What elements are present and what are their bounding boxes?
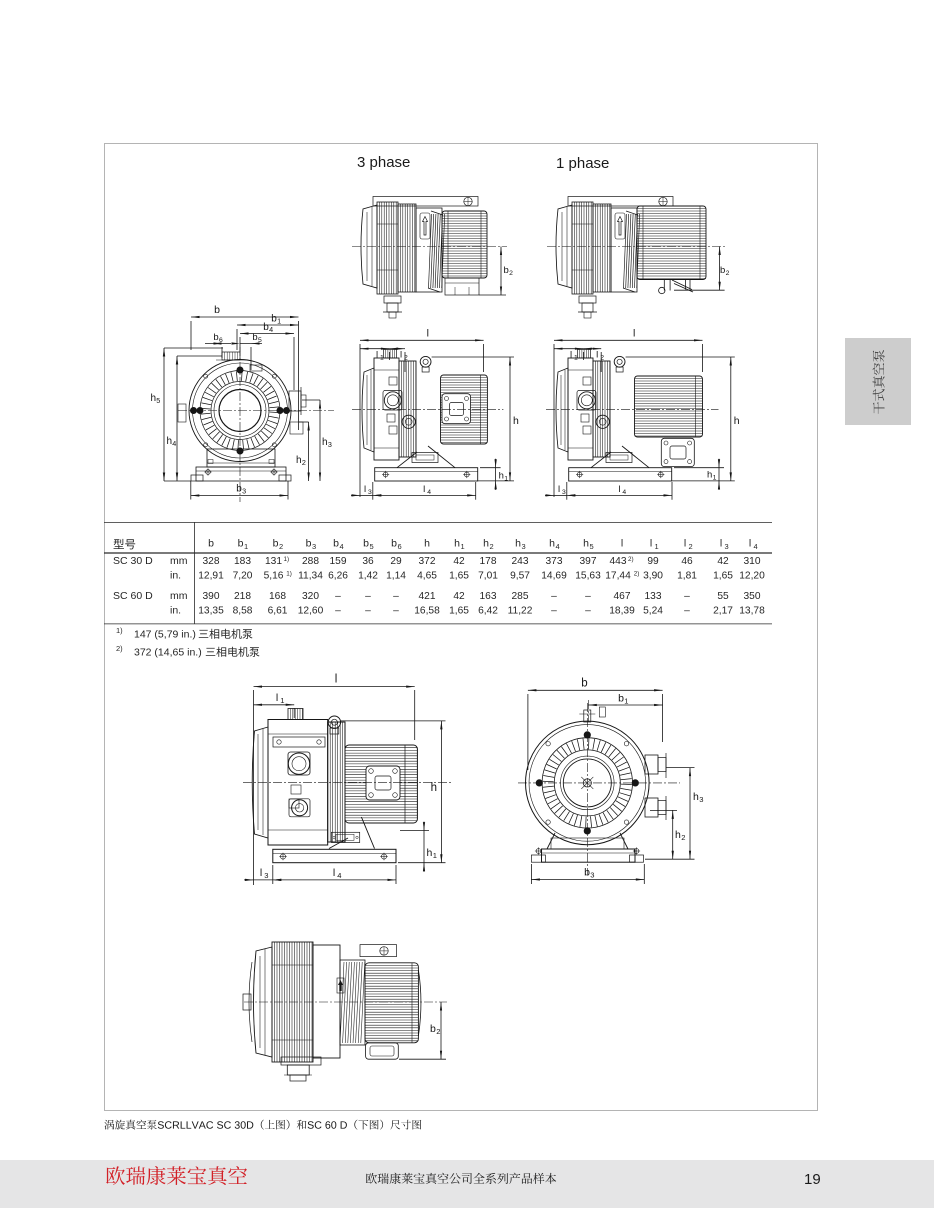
svg-text:b: b [504, 265, 509, 276]
svg-text:443: 443 [610, 556, 627, 567]
svg-text:2: 2 [726, 270, 730, 277]
svg-text:h: h [427, 847, 433, 859]
svg-text:2: 2 [490, 542, 494, 551]
svg-text:h: h [513, 415, 519, 427]
svg-text:mm: mm [170, 590, 188, 602]
svg-text:b: b [273, 538, 279, 550]
svg-text:–: – [393, 606, 399, 617]
svg-text:–: – [551, 606, 557, 617]
svg-text:42: 42 [453, 591, 465, 602]
svg-text:5,16: 5,16 [264, 571, 284, 582]
svg-text:l: l [260, 867, 262, 879]
svg-text:3: 3 [699, 795, 703, 804]
svg-text:in.: in. [170, 605, 181, 617]
svg-text:l: l [684, 538, 686, 550]
svg-text:5: 5 [370, 542, 374, 551]
svg-text:6,61: 6,61 [268, 606, 288, 617]
svg-text:9,57: 9,57 [510, 571, 530, 582]
svg-text:l: l [427, 328, 429, 340]
svg-text:4,65: 4,65 [417, 571, 437, 582]
svg-text:3: 3 [264, 871, 268, 880]
svg-text:42: 42 [453, 556, 465, 567]
svg-text:b: b [363, 538, 369, 550]
svg-text:3: 3 [312, 542, 316, 551]
svg-text:–: – [551, 591, 557, 602]
svg-text:4: 4 [754, 542, 758, 551]
svg-text:1: 1 [574, 355, 578, 362]
svg-text:4: 4 [340, 542, 344, 551]
svg-text:b: b [238, 538, 244, 550]
svg-text:285: 285 [512, 591, 529, 602]
svg-text:133: 133 [645, 591, 662, 602]
svg-text:36: 36 [362, 556, 374, 567]
svg-text:in.: in. [170, 570, 181, 582]
svg-text:243: 243 [512, 556, 529, 567]
svg-text:46: 46 [681, 556, 693, 567]
svg-text:b: b [306, 538, 312, 550]
svg-text:390: 390 [203, 591, 220, 602]
svg-text:350: 350 [744, 591, 761, 602]
svg-text:b: b [252, 332, 257, 343]
svg-text:3: 3 [242, 487, 246, 496]
svg-text:13,78: 13,78 [739, 606, 765, 617]
svg-text:29: 29 [390, 556, 402, 567]
svg-text:8,58: 8,58 [233, 606, 253, 617]
svg-text:11,22: 11,22 [508, 606, 533, 617]
svg-text:7,01: 7,01 [478, 571, 498, 582]
svg-text:131: 131 [265, 556, 282, 567]
svg-text:14,69: 14,69 [541, 571, 567, 582]
svg-text:2: 2 [689, 542, 693, 551]
svg-text:1: 1 [380, 355, 384, 362]
svg-text:h: h [693, 791, 699, 803]
svg-text:l: l [333, 867, 335, 879]
svg-text:h: h [515, 538, 521, 550]
svg-text:2: 2 [436, 1027, 440, 1036]
svg-text:h: h [322, 437, 328, 448]
svg-text:SC 30 D: SC 30 D [113, 555, 153, 567]
svg-text:147 (5,79 in.): 147 (5,79 in.) [134, 629, 196, 641]
svg-text:5: 5 [258, 337, 262, 344]
svg-text:h: h [734, 415, 740, 427]
svg-text:372 (14,65 in.): 372 (14,65 in.) [134, 647, 202, 659]
svg-text:42: 42 [717, 556, 729, 567]
svg-text:l: l [633, 328, 635, 340]
svg-text:3 phase: 3 phase [357, 154, 410, 171]
svg-text:h: h [707, 470, 712, 481]
svg-text:1,65: 1,65 [449, 571, 469, 582]
svg-text:b: b [213, 332, 218, 343]
svg-text:1: 1 [461, 542, 465, 551]
svg-text:l: l [570, 350, 572, 361]
svg-text:b: b [618, 693, 624, 705]
svg-text:6,26: 6,26 [328, 571, 348, 582]
svg-text:SC 60 D: SC 60 D [113, 590, 153, 602]
svg-text:3,90: 3,90 [643, 571, 663, 582]
svg-text:l: l [720, 538, 722, 550]
svg-text:5: 5 [590, 542, 594, 551]
svg-text:h: h [483, 538, 489, 550]
svg-text:b: b [391, 538, 397, 550]
svg-text:–: – [365, 606, 371, 617]
svg-text:–: – [335, 591, 341, 602]
svg-text:b: b [720, 265, 725, 276]
svg-text:l: l [276, 692, 278, 704]
svg-text:–: – [684, 606, 690, 617]
svg-text:1: 1 [280, 696, 284, 705]
svg-text:288: 288 [302, 556, 319, 567]
svg-text:2: 2 [279, 542, 283, 551]
svg-text:397: 397 [580, 556, 597, 567]
svg-text:b: b [584, 867, 590, 879]
svg-text:159: 159 [330, 556, 347, 567]
svg-text:l: l [558, 484, 560, 495]
svg-text:h: h [583, 538, 589, 550]
svg-text:b: b [430, 1023, 436, 1035]
svg-text:1): 1) [284, 556, 290, 563]
svg-text:mm: mm [170, 555, 188, 567]
svg-text:12,91: 12,91 [198, 571, 224, 582]
svg-text:1,81: 1,81 [677, 571, 697, 582]
svg-text:6,42: 6,42 [478, 606, 498, 617]
svg-text:l: l [618, 484, 620, 495]
svg-text:b: b [333, 538, 339, 550]
svg-text:l: l [749, 538, 751, 550]
svg-text:h: h [296, 455, 302, 466]
svg-text:3: 3 [562, 489, 566, 496]
svg-text:h: h [166, 436, 172, 447]
svg-text:310: 310 [744, 556, 761, 567]
svg-text:l: l [650, 538, 652, 550]
svg-text:l: l [621, 538, 623, 550]
svg-text:1: 1 [504, 476, 508, 483]
svg-text:15,63: 15,63 [575, 571, 601, 582]
svg-text:421: 421 [419, 591, 436, 602]
svg-text:1: 1 [244, 542, 248, 551]
svg-text:4: 4 [427, 489, 431, 496]
svg-text:b: b [581, 678, 587, 690]
svg-text:b: b [208, 538, 214, 550]
svg-text:372: 372 [419, 556, 436, 567]
svg-text:2): 2) [634, 571, 640, 578]
svg-text:h: h [454, 538, 460, 550]
svg-text:1: 1 [277, 317, 281, 326]
svg-text:–: – [335, 606, 341, 617]
svg-text:467: 467 [614, 591, 631, 602]
svg-text:h: h [150, 393, 156, 404]
svg-text:218: 218 [234, 591, 251, 602]
svg-text:4: 4 [556, 542, 560, 551]
svg-text:1: 1 [713, 475, 717, 482]
svg-text:320: 320 [302, 591, 319, 602]
svg-text:99: 99 [647, 556, 659, 567]
svg-text:2: 2 [302, 458, 306, 467]
svg-text:178: 178 [480, 556, 497, 567]
svg-text:18,39: 18,39 [609, 606, 635, 617]
svg-text:l: l [364, 484, 366, 495]
svg-text:l: l [376, 350, 378, 361]
svg-text:1): 1) [116, 626, 123, 635]
svg-text:4: 4 [172, 439, 176, 448]
svg-text:1,14: 1,14 [386, 571, 406, 582]
svg-text:6: 6 [219, 337, 223, 344]
svg-text:2: 2 [509, 270, 513, 277]
svg-text:1,42: 1,42 [358, 571, 378, 582]
svg-text:b: b [214, 304, 220, 316]
svg-text:163: 163 [480, 591, 497, 602]
svg-text:–: – [585, 606, 591, 617]
svg-text:3: 3 [522, 542, 526, 551]
svg-text:1: 1 [433, 851, 437, 860]
svg-text:h: h [431, 782, 437, 794]
svg-text:–: – [393, 591, 399, 602]
svg-text:1: 1 [655, 542, 659, 551]
svg-text:12,20: 12,20 [739, 571, 765, 582]
svg-text:373: 373 [546, 556, 563, 567]
svg-text:12,60: 12,60 [298, 606, 324, 617]
svg-text:183: 183 [234, 556, 251, 567]
svg-text:16,58: 16,58 [414, 606, 440, 617]
svg-text:1): 1) [286, 571, 292, 578]
svg-text:168: 168 [269, 591, 286, 602]
svg-text:3: 3 [328, 440, 332, 449]
svg-text:3: 3 [590, 871, 594, 880]
svg-text:2: 2 [681, 833, 685, 842]
svg-text:l: l [596, 350, 598, 361]
svg-text:55: 55 [717, 591, 729, 602]
svg-text:–: – [585, 591, 591, 602]
svg-text:h: h [499, 471, 504, 482]
svg-text:2,17: 2,17 [713, 606, 733, 617]
svg-text:1,65: 1,65 [713, 571, 733, 582]
svg-text:13,35: 13,35 [198, 606, 224, 617]
svg-text:4: 4 [269, 325, 273, 334]
svg-text:–: – [684, 591, 690, 602]
svg-text:5: 5 [156, 396, 160, 405]
svg-text:l: l [335, 674, 338, 686]
svg-text:2): 2) [628, 556, 634, 563]
svg-text:3: 3 [725, 542, 729, 551]
svg-text:h: h [424, 538, 430, 550]
svg-text:7,20: 7,20 [233, 571, 253, 582]
svg-text:3: 3 [368, 489, 372, 496]
svg-text:1: 1 [624, 697, 628, 706]
svg-text:5,24: 5,24 [643, 606, 663, 617]
svg-text:4: 4 [622, 489, 626, 496]
svg-text:h: h [675, 829, 681, 841]
svg-text:2): 2) [116, 644, 123, 653]
svg-text:l: l [423, 484, 425, 495]
svg-text:1,65: 1,65 [449, 606, 469, 617]
svg-text:h: h [549, 538, 555, 550]
svg-text:–: – [365, 591, 371, 602]
svg-text:l: l [400, 350, 402, 361]
svg-text:6: 6 [398, 542, 402, 551]
svg-text:17,44: 17,44 [605, 571, 631, 582]
svg-text:1 phase: 1 phase [556, 155, 609, 172]
svg-text:328: 328 [203, 556, 220, 567]
svg-text:4: 4 [337, 871, 341, 880]
svg-text:11,34: 11,34 [298, 571, 323, 582]
